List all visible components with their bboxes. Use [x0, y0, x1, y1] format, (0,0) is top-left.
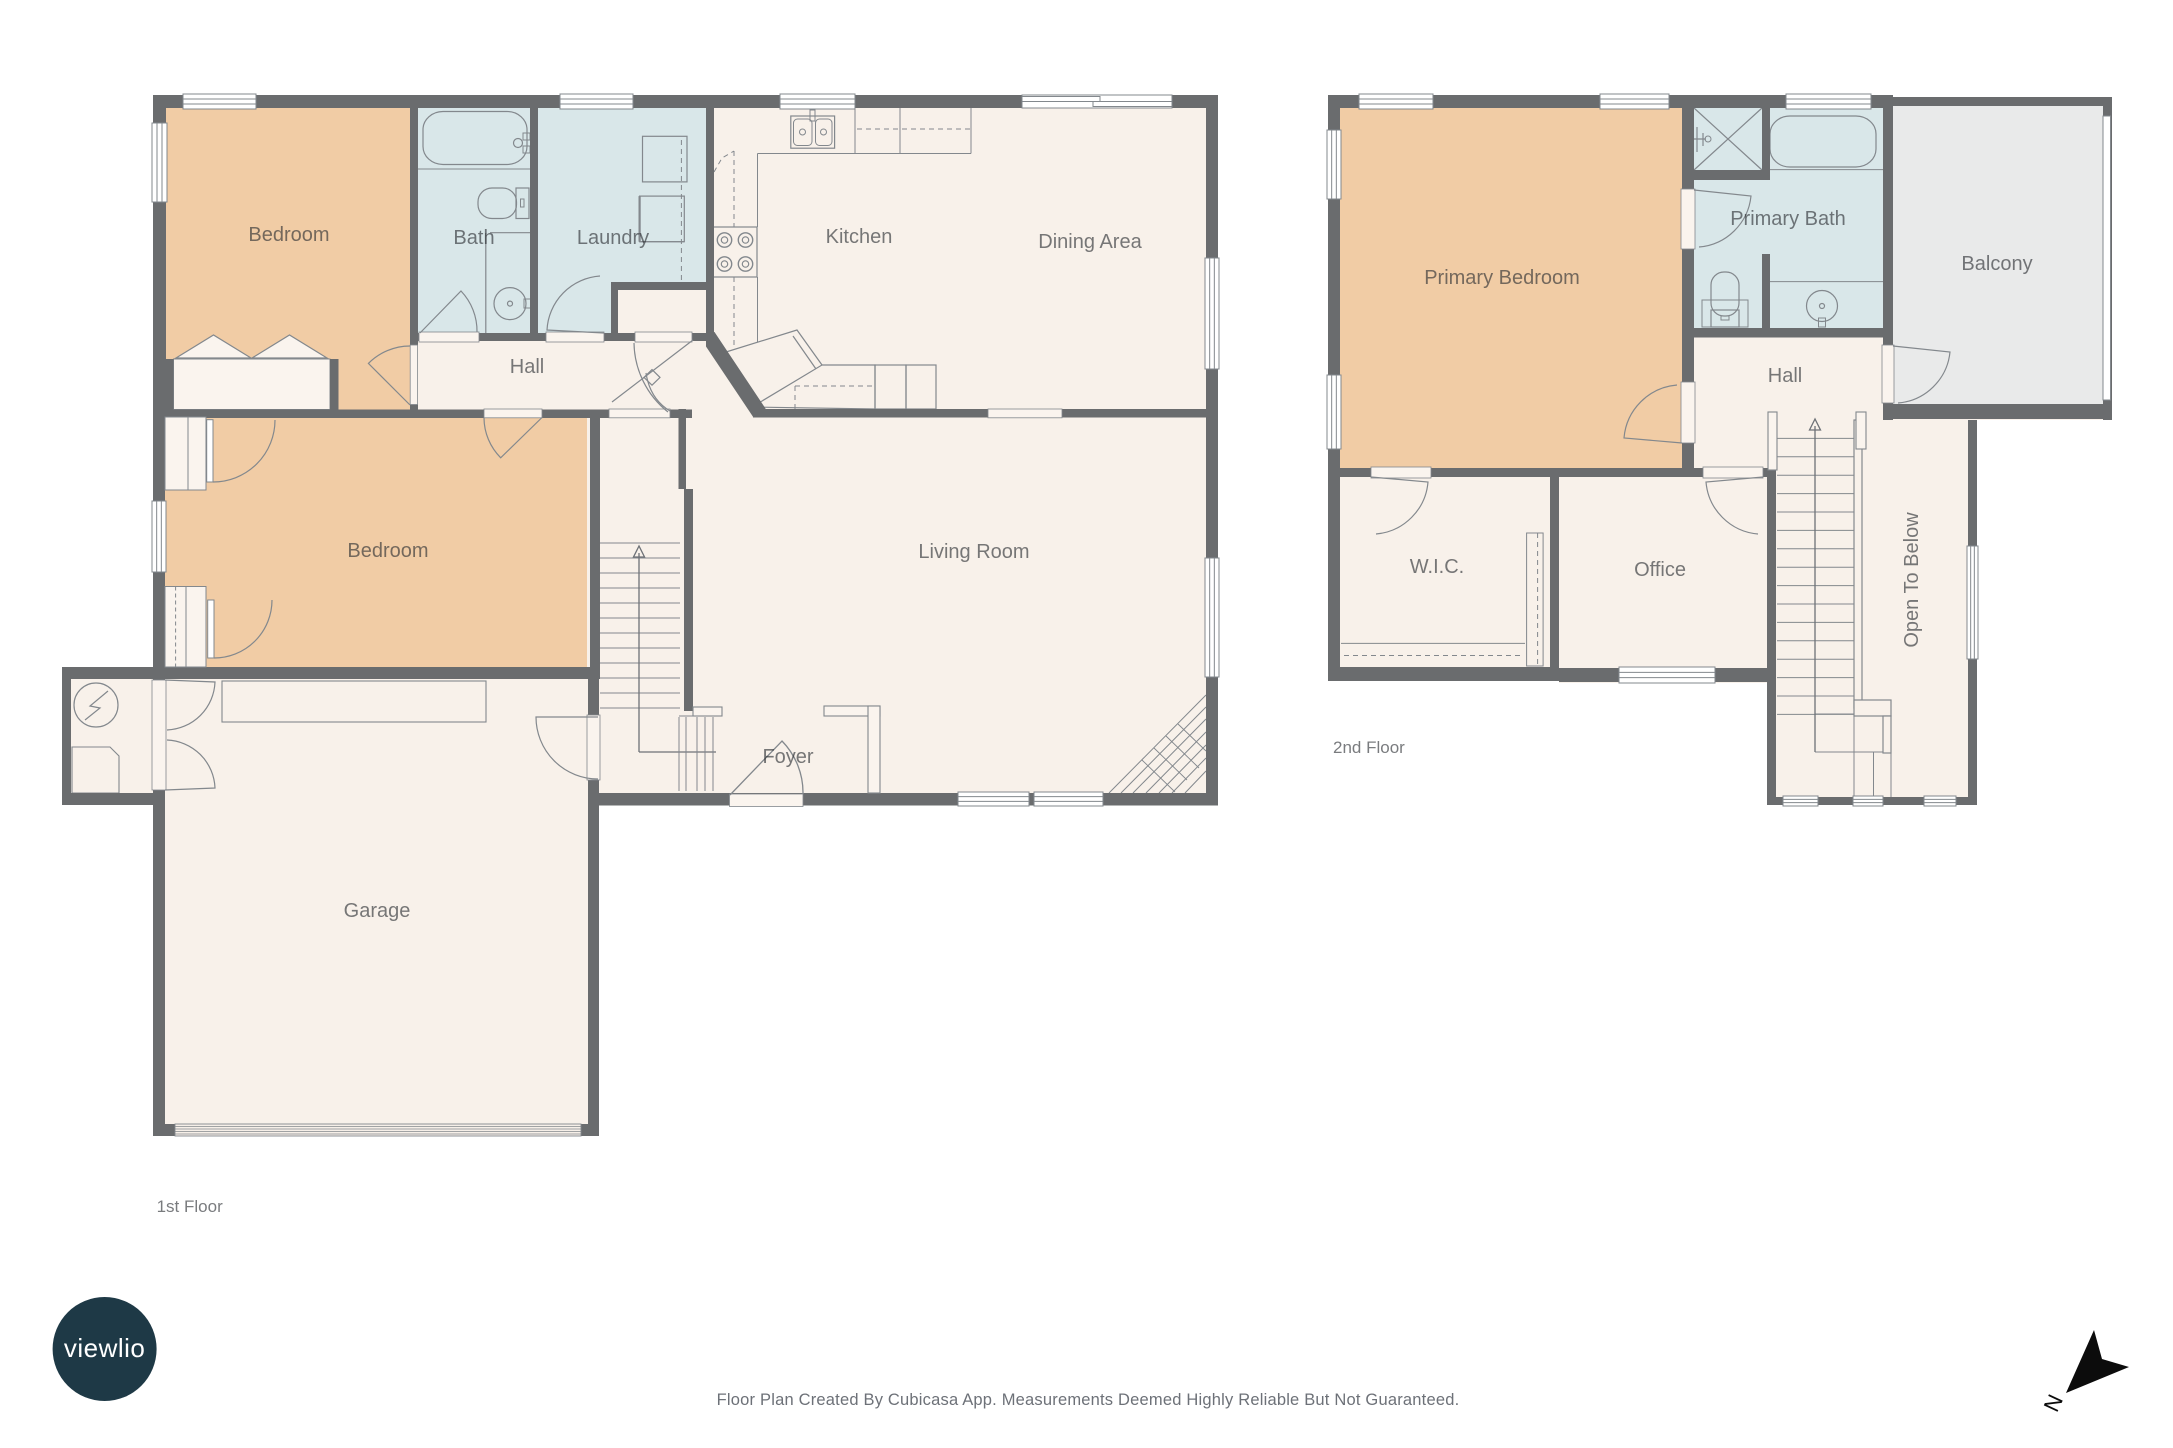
svg-text:1st Floor: 1st Floor: [157, 1197, 223, 1216]
svg-text:viewlio: viewlio: [64, 1333, 146, 1363]
svg-text:Kitchen: Kitchen: [826, 226, 893, 248]
svg-text:Bedroom: Bedroom: [248, 224, 329, 246]
svg-text:Balcony: Balcony: [1961, 253, 2032, 275]
svg-text:Floor Plan Created By Cubicasa: Floor Plan Created By Cubicasa App. Meas…: [717, 1391, 1460, 1409]
svg-text:2nd Floor: 2nd Floor: [1333, 738, 1405, 757]
svg-text:Bedroom: Bedroom: [347, 540, 428, 562]
svg-text:Foyer: Foyer: [762, 746, 813, 768]
svg-text:Living Room: Living Room: [918, 541, 1029, 563]
svg-text:Laundry: Laundry: [577, 227, 649, 249]
svg-text:Office: Office: [1634, 559, 1686, 581]
svg-text:Open To Below: Open To Below: [1901, 512, 1923, 648]
svg-text:Bath: Bath: [453, 227, 494, 249]
svg-text:Primary Bedroom: Primary Bedroom: [1424, 267, 1580, 289]
svg-text:Dining Area: Dining Area: [1038, 231, 1142, 253]
svg-text:Garage: Garage: [344, 900, 411, 922]
svg-text:W.I.C.: W.I.C.: [1410, 556, 1464, 578]
svg-text:Hall: Hall: [510, 356, 544, 378]
svg-text:Hall: Hall: [1768, 365, 1802, 387]
svg-text:Primary Bath: Primary Bath: [1730, 208, 1846, 230]
